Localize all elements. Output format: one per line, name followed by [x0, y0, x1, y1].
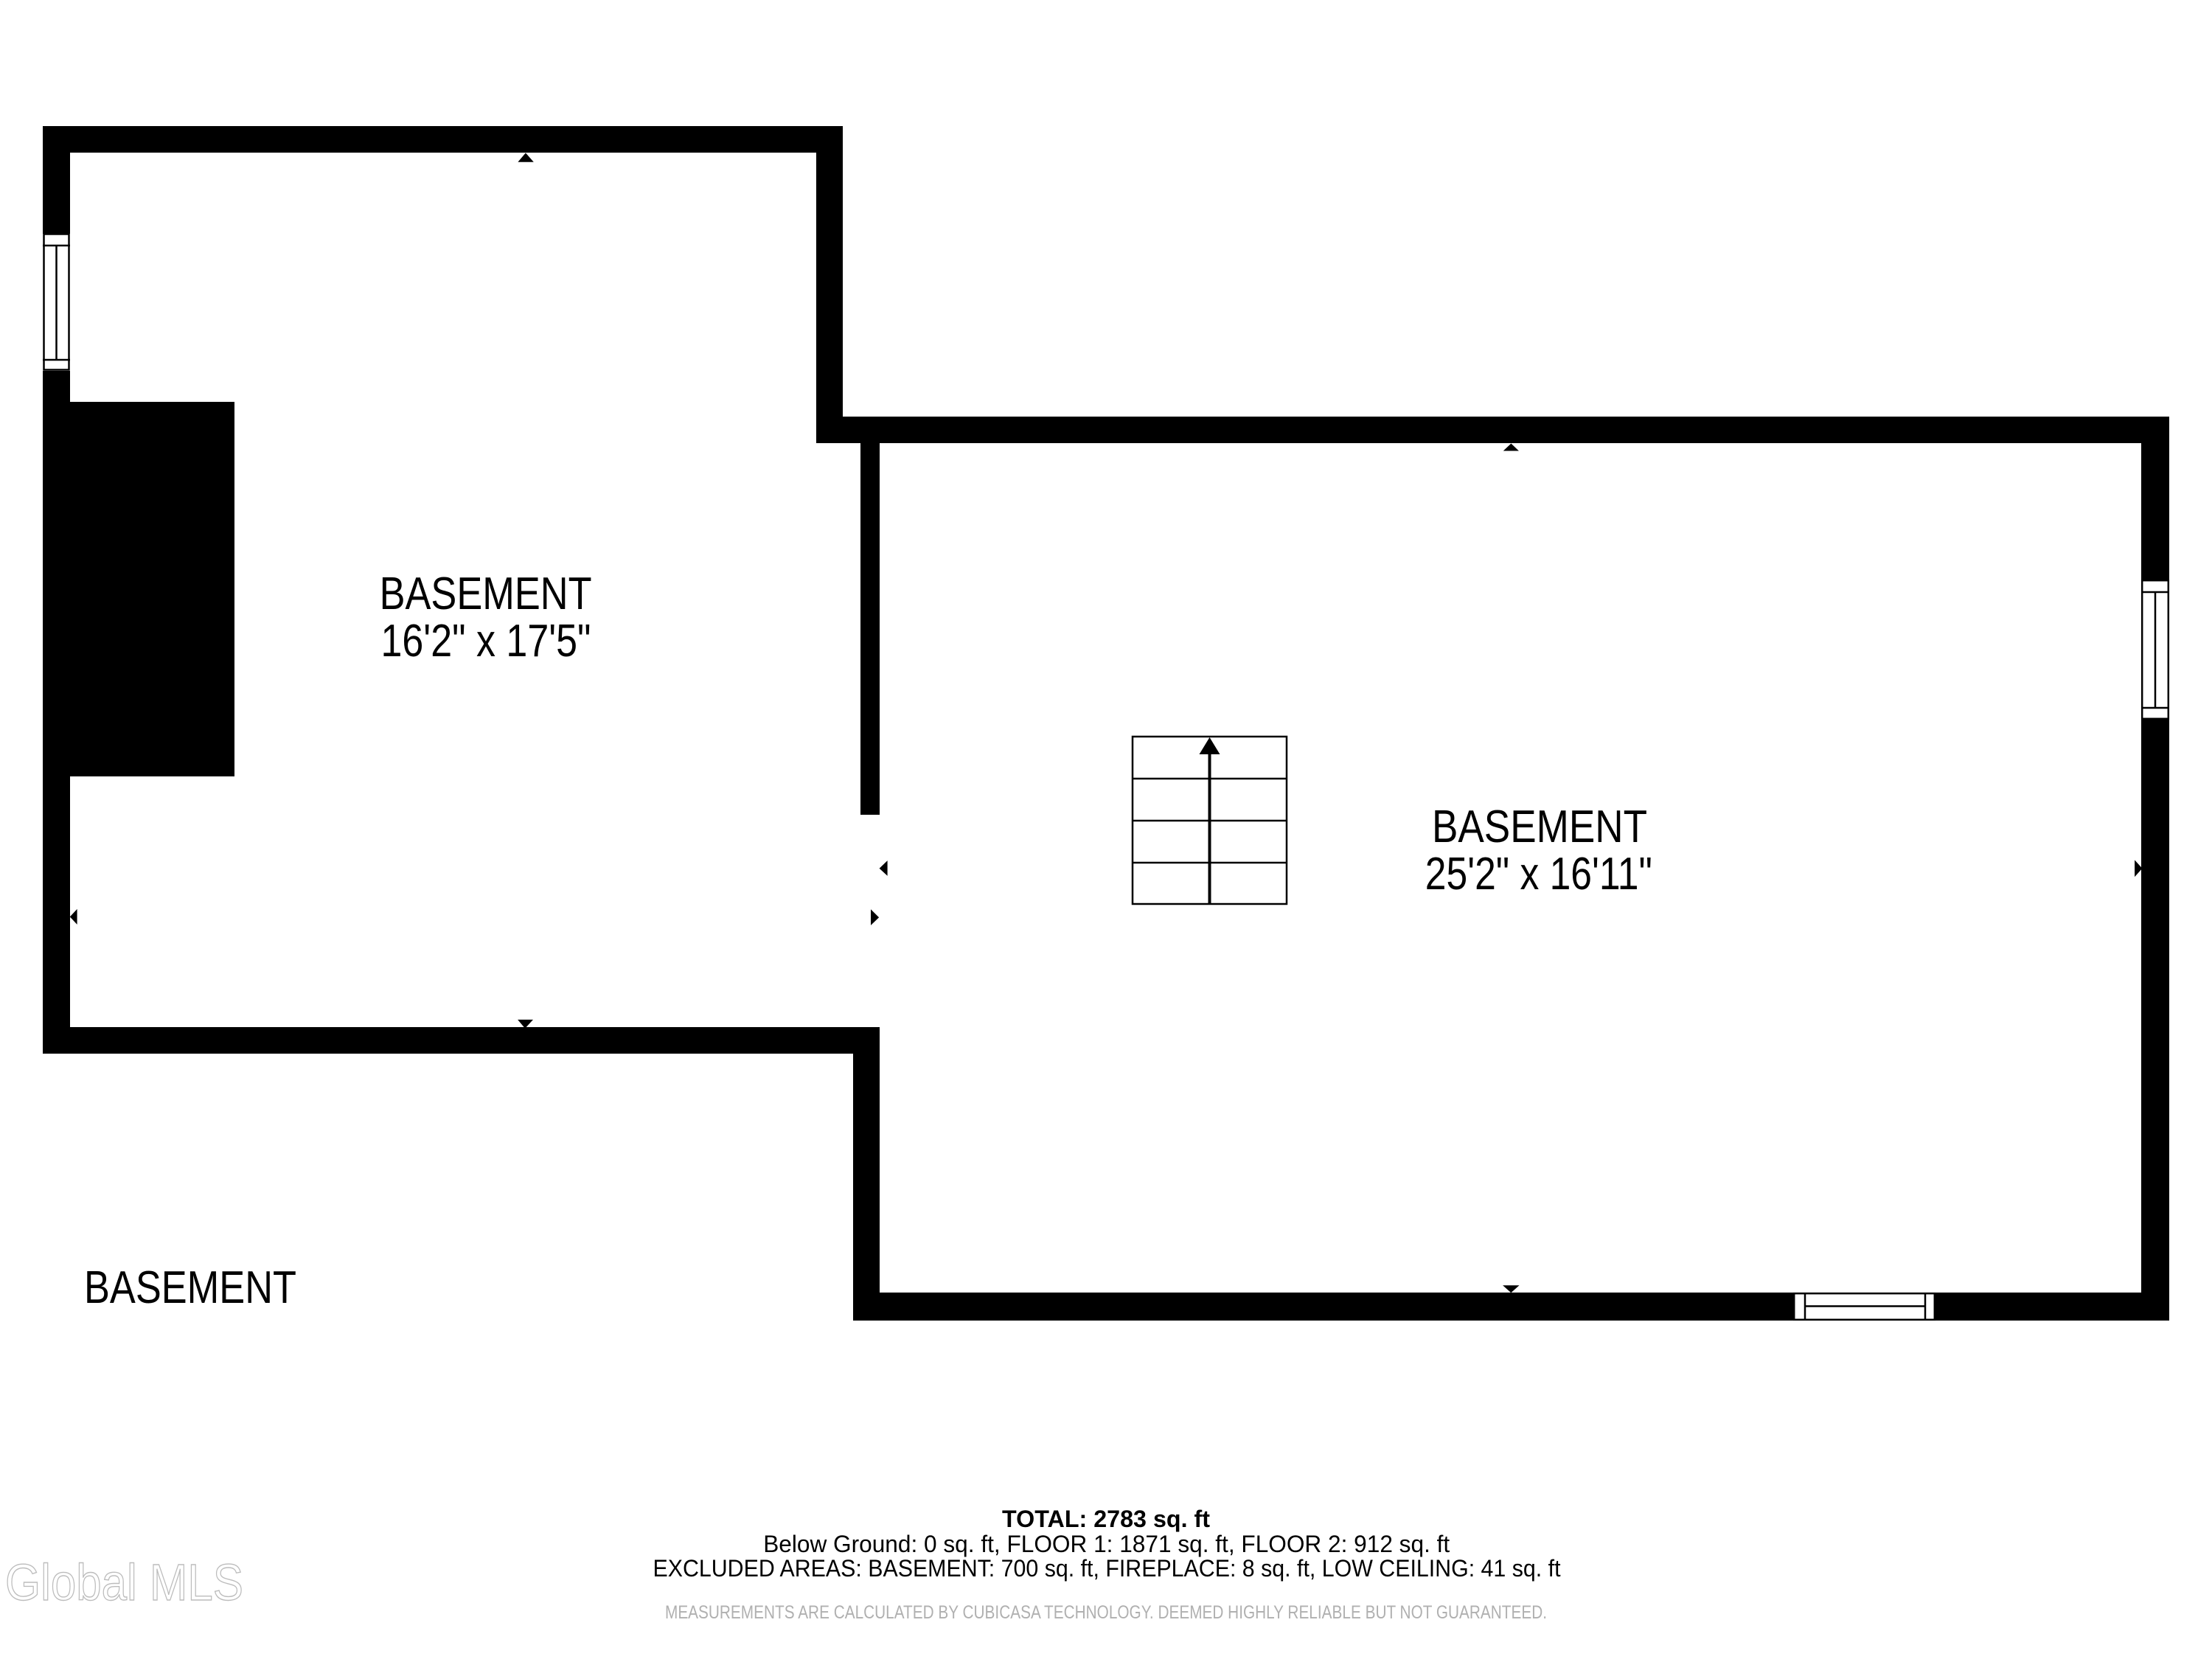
svg-text:TOTAL: 2783 sq. ft: TOTAL: 2783 sq. ft: [1002, 1506, 1210, 1532]
svg-text:Below Ground: 0 sq. ft, FLOOR: Below Ground: 0 sq. ft, FLOOR 1: 1871 sq…: [763, 1531, 1450, 1557]
svg-text:BASEMENT: BASEMENT: [84, 1262, 296, 1313]
svg-text:MEASUREMENTS ARE CALCULATED BY: MEASUREMENTS ARE CALCULATED BY CUBICASA …: [665, 1602, 1547, 1623]
svg-text:25'2" x 16'11": 25'2" x 16'11": [1425, 849, 1652, 900]
svg-text:EXCLUDED AREAS: BASEMENT: 700: EXCLUDED AREAS: BASEMENT: 700 sq. ft, FI…: [653, 1555, 1561, 1582]
svg-text:16'2" x 17'5": 16'2" x 17'5": [381, 616, 591, 667]
svg-text:BASEMENT: BASEMENT: [380, 568, 592, 619]
svg-text:Global MLS: Global MLS: [5, 1554, 243, 1611]
svg-text:BASEMENT: BASEMENT: [1432, 801, 1647, 852]
